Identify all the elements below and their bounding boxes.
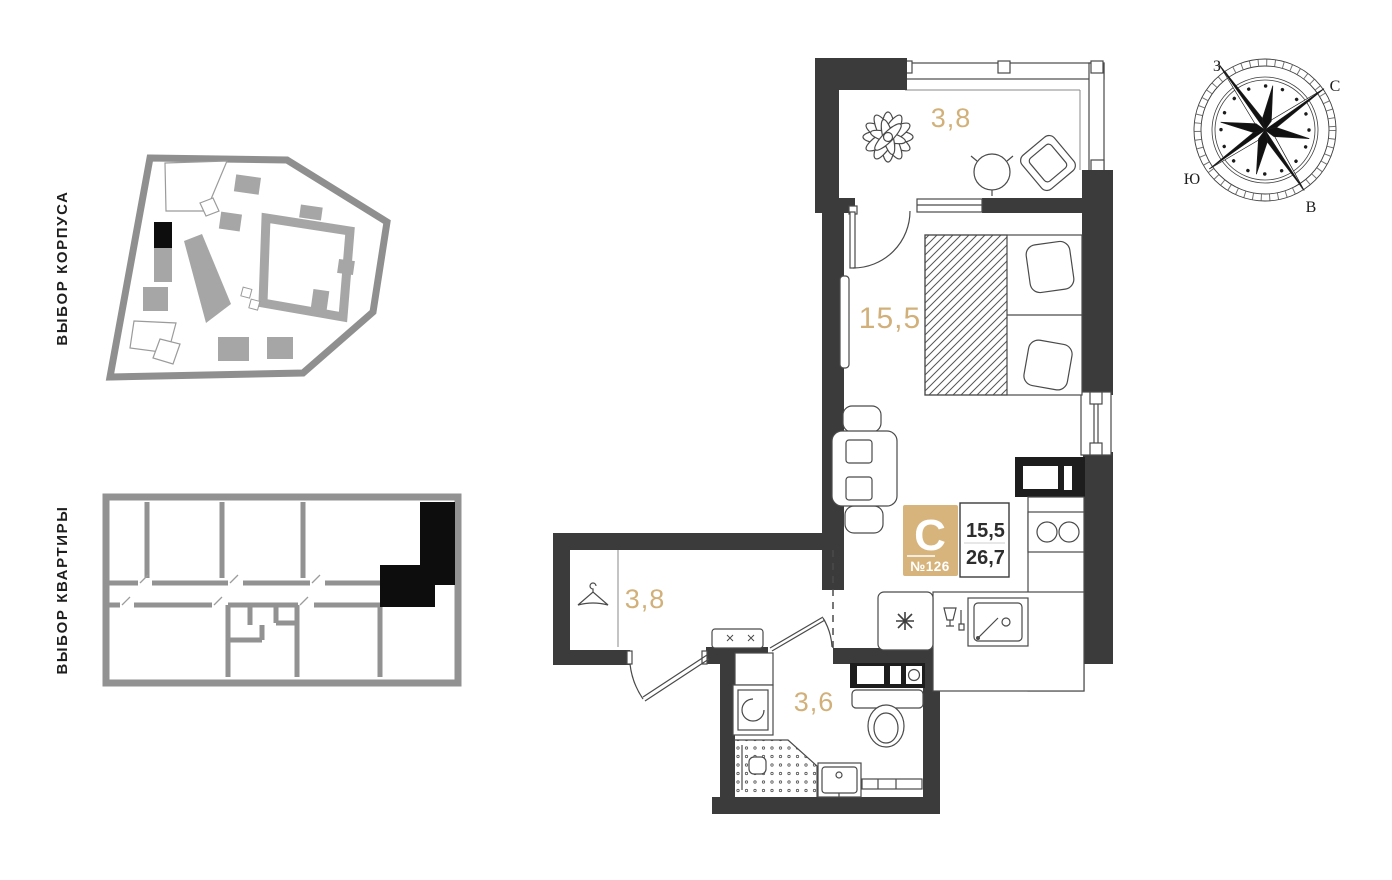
water-heater xyxy=(735,653,773,685)
living-area-value: 15,5 xyxy=(966,520,1005,542)
balcony-table-icon xyxy=(971,154,1013,196)
towel-rail xyxy=(862,779,922,789)
building-selector-minimap[interactable] xyxy=(100,140,400,390)
stove-icon xyxy=(1028,512,1084,552)
entrance-door xyxy=(627,651,709,701)
room-window xyxy=(1081,392,1111,455)
compass-rose: З С Ю В xyxy=(1180,45,1350,215)
hanger-icon xyxy=(578,583,608,605)
balcony-area-label: 3,8 xyxy=(931,103,972,133)
building-selector-label: ВЫБОР КОРПУСА xyxy=(54,178,76,358)
bathroom-sink-icon xyxy=(818,763,861,797)
bathroom-area-label: 3,6 xyxy=(794,687,835,717)
compass-east-label: В xyxy=(1306,199,1317,215)
apartment-plan-page: ВЫБОР КОРПУСА ВЫБОР КВАРТИРЫ xyxy=(0,0,1392,880)
kitchen-sink-icon xyxy=(968,598,1028,646)
apartment-badge: С №126 15,5 26,7 xyxy=(903,503,1009,577)
compass-south-label: Ю xyxy=(1184,171,1200,188)
vent-duct-bathroom xyxy=(850,663,925,688)
hallway-area-label: 3,8 xyxy=(625,584,666,614)
bed xyxy=(925,235,1082,395)
balcony-armchair-icon xyxy=(1018,133,1078,194)
compass-west-label: З xyxy=(1213,58,1221,75)
apartment-number: №126 xyxy=(910,559,950,574)
selected-building[interactable] xyxy=(154,222,172,248)
washing-machine-icon xyxy=(733,685,773,735)
plant-icon xyxy=(863,112,913,162)
total-area-value: 26,7 xyxy=(966,547,1005,569)
apartment-type: С xyxy=(914,511,946,560)
pillow xyxy=(1025,240,1075,294)
apartment-selector-label: ВЫБОР КВАРТИРЫ xyxy=(54,500,76,680)
main-floor-plan: 3,8 15,5 3,8 3,6 С №126 15,5 26,7 xyxy=(540,40,1130,830)
tv-unit xyxy=(840,276,849,368)
bathroom-door xyxy=(770,617,832,651)
compass-star xyxy=(1209,65,1324,191)
dining-table xyxy=(832,431,897,506)
pillow xyxy=(1022,339,1073,392)
apartment-selector-minimap[interactable] xyxy=(100,490,470,690)
compass-north-label: С xyxy=(1330,78,1341,95)
fridge-icon xyxy=(878,592,933,650)
shower-icon xyxy=(734,740,817,797)
toilet-icon xyxy=(852,690,923,747)
wall-shelf xyxy=(712,629,763,648)
main-room-area-label: 15,5 xyxy=(859,302,921,335)
vent-duct-kitchen xyxy=(1015,457,1085,497)
